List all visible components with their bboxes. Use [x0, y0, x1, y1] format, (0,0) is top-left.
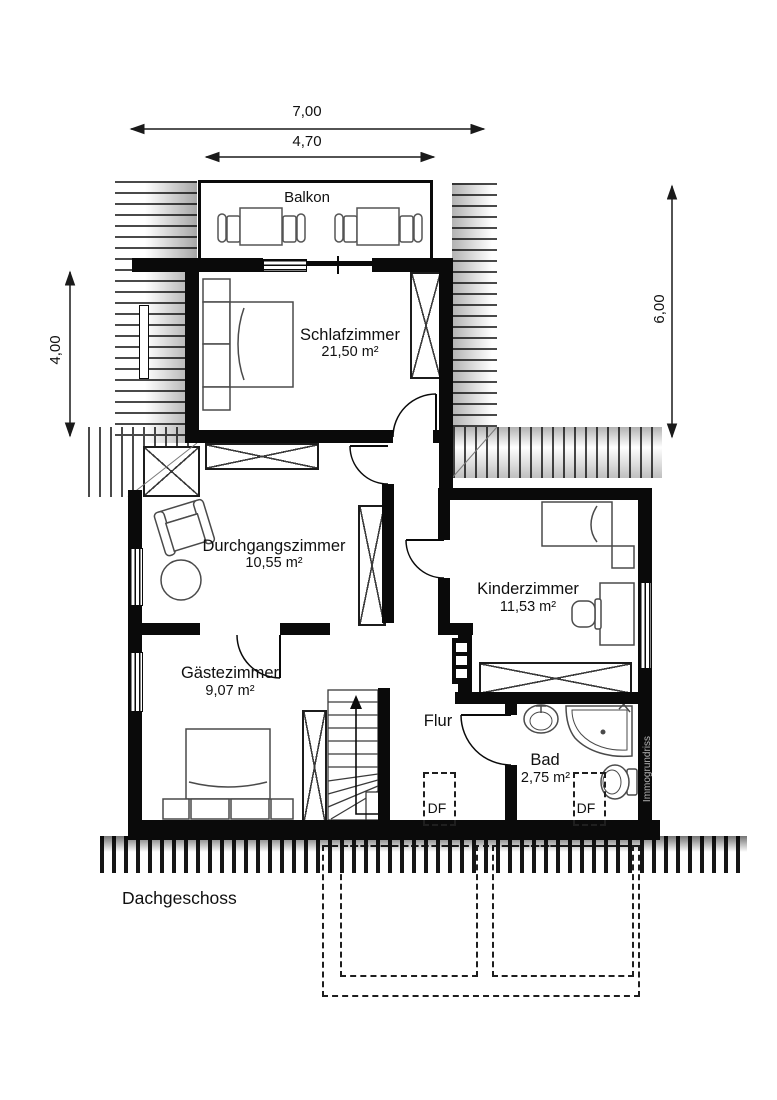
bathtub — [566, 700, 632, 756]
wall-schlafzimmer-door-stub — [433, 430, 453, 443]
roof-window-flur-label: DF — [412, 801, 462, 816]
dimension-left: 4,00 — [48, 308, 65, 392]
dimension-top-outer: 7,00 — [237, 104, 377, 121]
wall-gaestezimmer-top-right — [280, 623, 330, 635]
room-area-durchgangszimmer: 10,55 m² — [184, 556, 364, 572]
bed-kinderzimmer — [542, 502, 634, 568]
wall-kinderzimmer-left-upper — [438, 500, 450, 540]
wall-stairs-right — [378, 688, 390, 820]
radiator-icon — [452, 638, 472, 684]
wall-gaestezimmer-top-left — [142, 623, 200, 635]
window-balcony — [263, 259, 307, 272]
wall-kinderzimmer-bottom — [455, 692, 652, 704]
room-label-schlafzimmer: Schlafzimmer — [270, 326, 430, 344]
room-label-durchgangszimmer: Durchgangszimmer — [184, 537, 364, 555]
window-gable-left — [139, 305, 149, 379]
room-area-schlafzimmer: 21,50 m² — [270, 345, 430, 361]
wall-schlafzimmer-right — [439, 258, 453, 500]
roof-window-flur-box — [423, 772, 456, 826]
room-label-bad: Bad — [505, 751, 585, 769]
wall-bad-left-upper — [505, 692, 517, 715]
dimension-right: 6,00 — [652, 266, 669, 352]
dimension-lines — [70, 129, 672, 437]
wall-kinderzimmer-top — [438, 488, 652, 500]
room-area-kinderzimmer: 11,53 m² — [448, 600, 608, 616]
room-area-bad: 2,75 m² — [498, 771, 593, 787]
window-gaestezimmer — [129, 652, 143, 712]
balcony-furniture — [218, 208, 422, 245]
wall-hall-bottom — [438, 623, 473, 635]
toilet — [601, 765, 637, 799]
room-label-gaestezimmer: Gästezimmer — [150, 664, 310, 682]
door-durchgangszimmer — [350, 446, 388, 484]
floorplan-dachgeschoss: 7,00 4,70 4,00 6,00 Balkon Schlafzimmer … — [0, 0, 777, 1100]
window-kinderzimmer — [639, 582, 652, 669]
wall-schlafzimmer-bottom — [185, 430, 393, 443]
room-label-flur: Flur — [398, 712, 478, 730]
page-title: Dachgeschoss — [122, 889, 237, 908]
bed-gaestezimmer — [163, 729, 293, 819]
door-kinderzimmer — [406, 540, 444, 578]
roof-window-bad-label: DF — [561, 801, 611, 816]
room-label-kinderzimmer: Kinderzimmer — [448, 580, 608, 598]
watermark: Immogrundriss — [642, 726, 653, 812]
room-area-gaestezimmer: 9,07 m² — [150, 684, 310, 700]
sink — [524, 705, 558, 733]
window-durchgangszimmer — [129, 548, 143, 606]
door-schlafzimmer — [393, 394, 436, 437]
balcony-label: Balkon — [257, 190, 357, 207]
wall-hall-left — [382, 484, 394, 623]
dimension-top-inner: 4,70 — [237, 134, 377, 151]
wall-schlafzimmer-left — [185, 258, 199, 443]
balcony-door — [305, 256, 372, 274]
